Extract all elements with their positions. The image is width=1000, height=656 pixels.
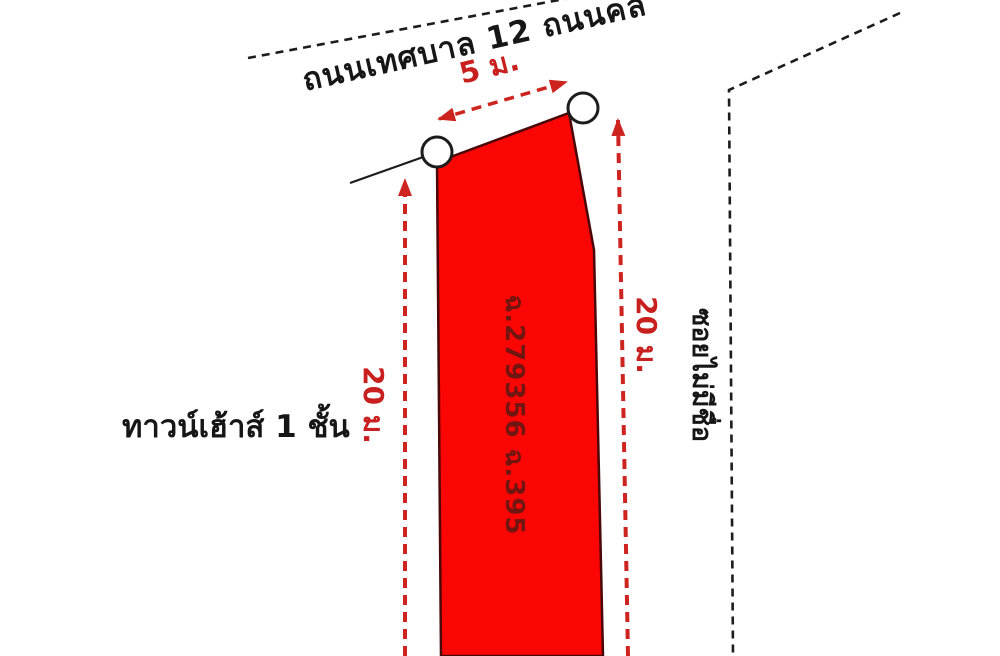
land-plot-diagram: ถนนเทศบาล 12 ถนนคล 5 ม. 20 ม. 20 ม. ฉ.27… bbox=[0, 0, 1000, 656]
soi-name-label: ซอยไม่มีชื่อ bbox=[685, 285, 719, 465]
plot-depth-dimension-right: 20 ม. bbox=[631, 295, 661, 375]
plot-depth-dimension-left: 20 ม. bbox=[358, 365, 388, 445]
width-arrow bbox=[439, 82, 566, 119]
boundary-marker-top-right bbox=[568, 93, 598, 123]
plot-deed-number: ฉ.279356 ฉ.395 bbox=[498, 300, 530, 530]
road-edge-line-right bbox=[729, 13, 900, 656]
neighbor-boundary-line bbox=[350, 156, 426, 183]
neighbor-building-label: ทาวน์เฮ้าส์ 1 ชั้น bbox=[122, 412, 350, 443]
boundary-marker-top-left bbox=[422, 137, 452, 167]
depth-arrow-right bbox=[618, 120, 628, 656]
